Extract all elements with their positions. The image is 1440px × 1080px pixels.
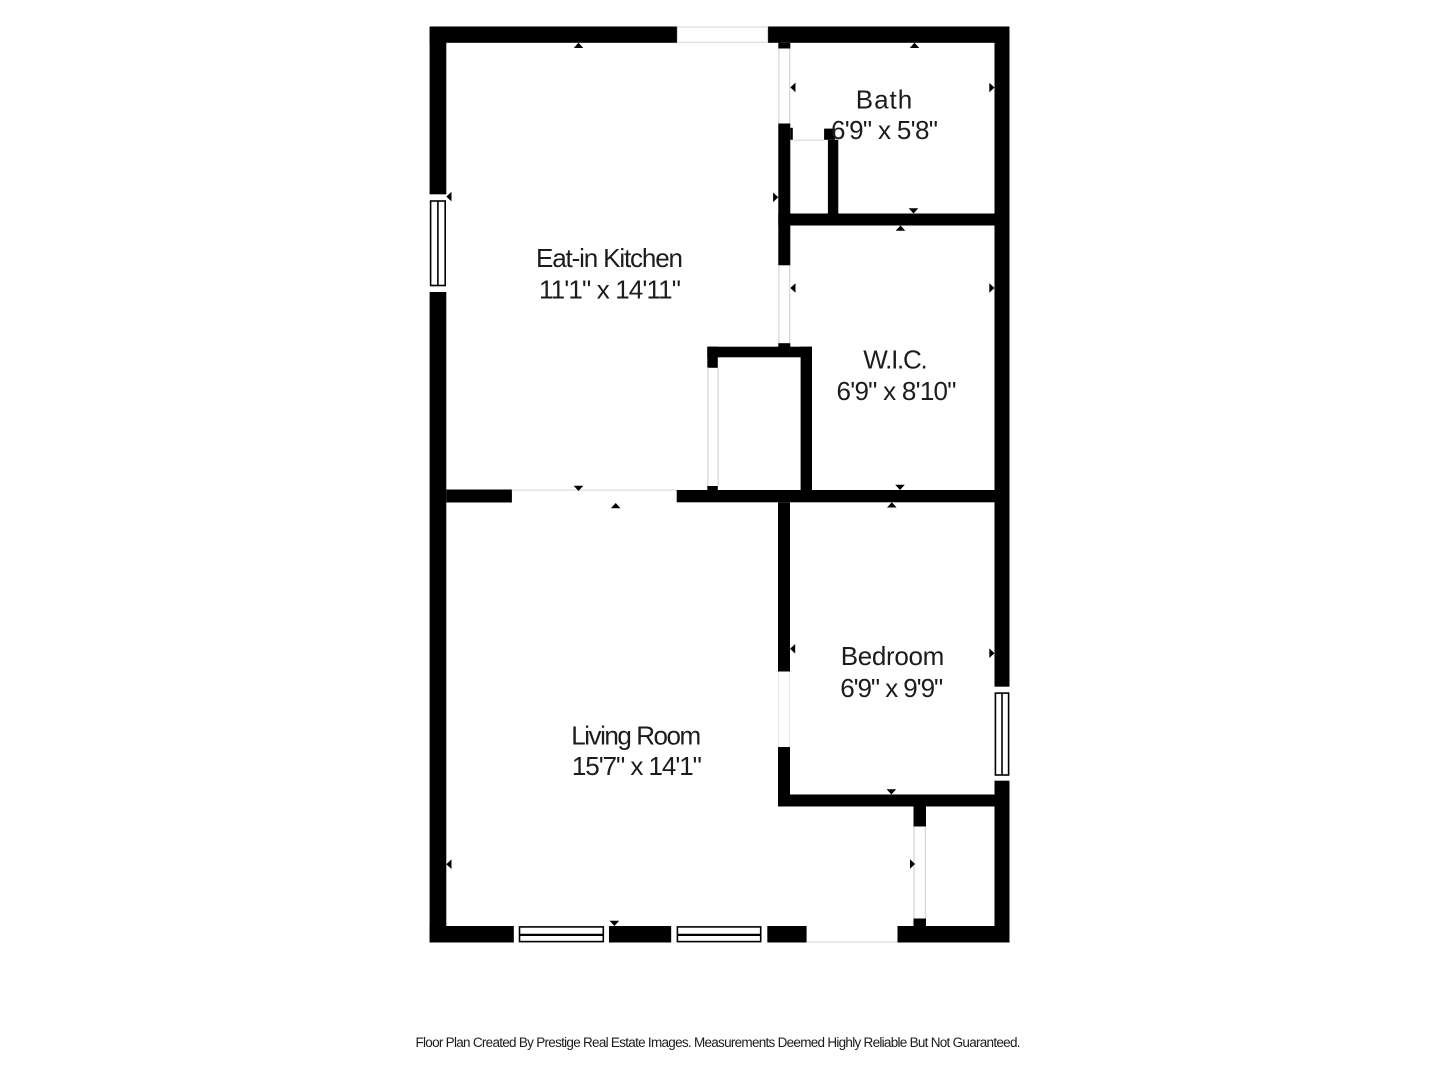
- svg-text:6'9" x 5'8": 6'9" x 5'8": [831, 115, 938, 145]
- svg-text:Bedroom: Bedroom: [841, 641, 945, 671]
- svg-text:Living Room: Living Room: [571, 721, 701, 751]
- svg-text:Eat-in Kitchen: Eat-in Kitchen: [536, 243, 683, 273]
- svg-text:Bath: Bath: [856, 84, 913, 114]
- svg-text:6'9" x 9'9": 6'9" x 9'9": [840, 673, 943, 703]
- svg-text:W.I.C.: W.I.C.: [863, 345, 928, 375]
- svg-text:11'1" x 14'11": 11'1" x 14'11": [539, 275, 681, 305]
- svg-text:6'9" x 8'10": 6'9" x 8'10": [837, 376, 957, 406]
- svg-text:Floor Plan Created By Prestige: Floor Plan Created By Prestige Real Esta…: [416, 1035, 1021, 1050]
- svg-text:15'7" x 14'1": 15'7" x 14'1": [572, 751, 702, 781]
